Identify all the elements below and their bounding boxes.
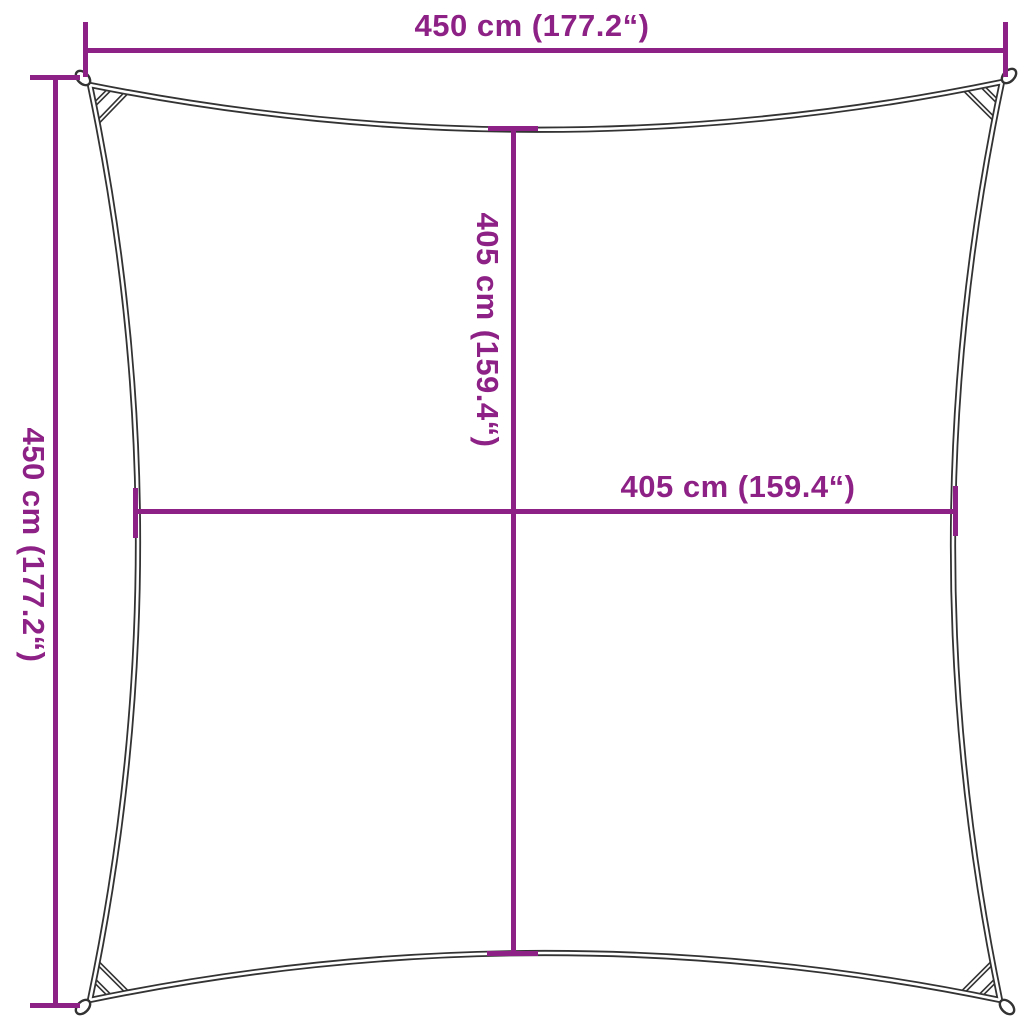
- center-horizontal-tick-right: [953, 486, 958, 536]
- top-dimension-tick-right: [1003, 22, 1008, 77]
- left-dimension-label: 450 cm (177.2“): [16, 345, 50, 745]
- left-dimension-tick-bottom: [30, 1003, 80, 1008]
- top-dimension-line: [85, 48, 1005, 53]
- center-horizontal-dimension-label: 405 cm (159.4“): [538, 470, 938, 504]
- top-dimension-tick-left: [83, 22, 88, 77]
- left-dimension-line: [53, 77, 58, 1005]
- center-vertical-tick-bottom: [487, 951, 538, 956]
- center-horizontal-tick-left: [133, 488, 138, 538]
- diagram-canvas: 450 cm (177.2“) 450 cm (177.2“) 405 cm (…: [0, 0, 1024, 1024]
- center-vertical-dimension-line: [511, 128, 516, 955]
- center-vertical-dimension-label: 405 cm (159.4“): [470, 130, 504, 530]
- center-horizontal-dimension-line: [135, 509, 955, 514]
- top-dimension-label: 450 cm (177.2“): [332, 9, 732, 43]
- sail-fabric: [90, 82, 1002, 1000]
- left-dimension-tick-top: [30, 75, 80, 80]
